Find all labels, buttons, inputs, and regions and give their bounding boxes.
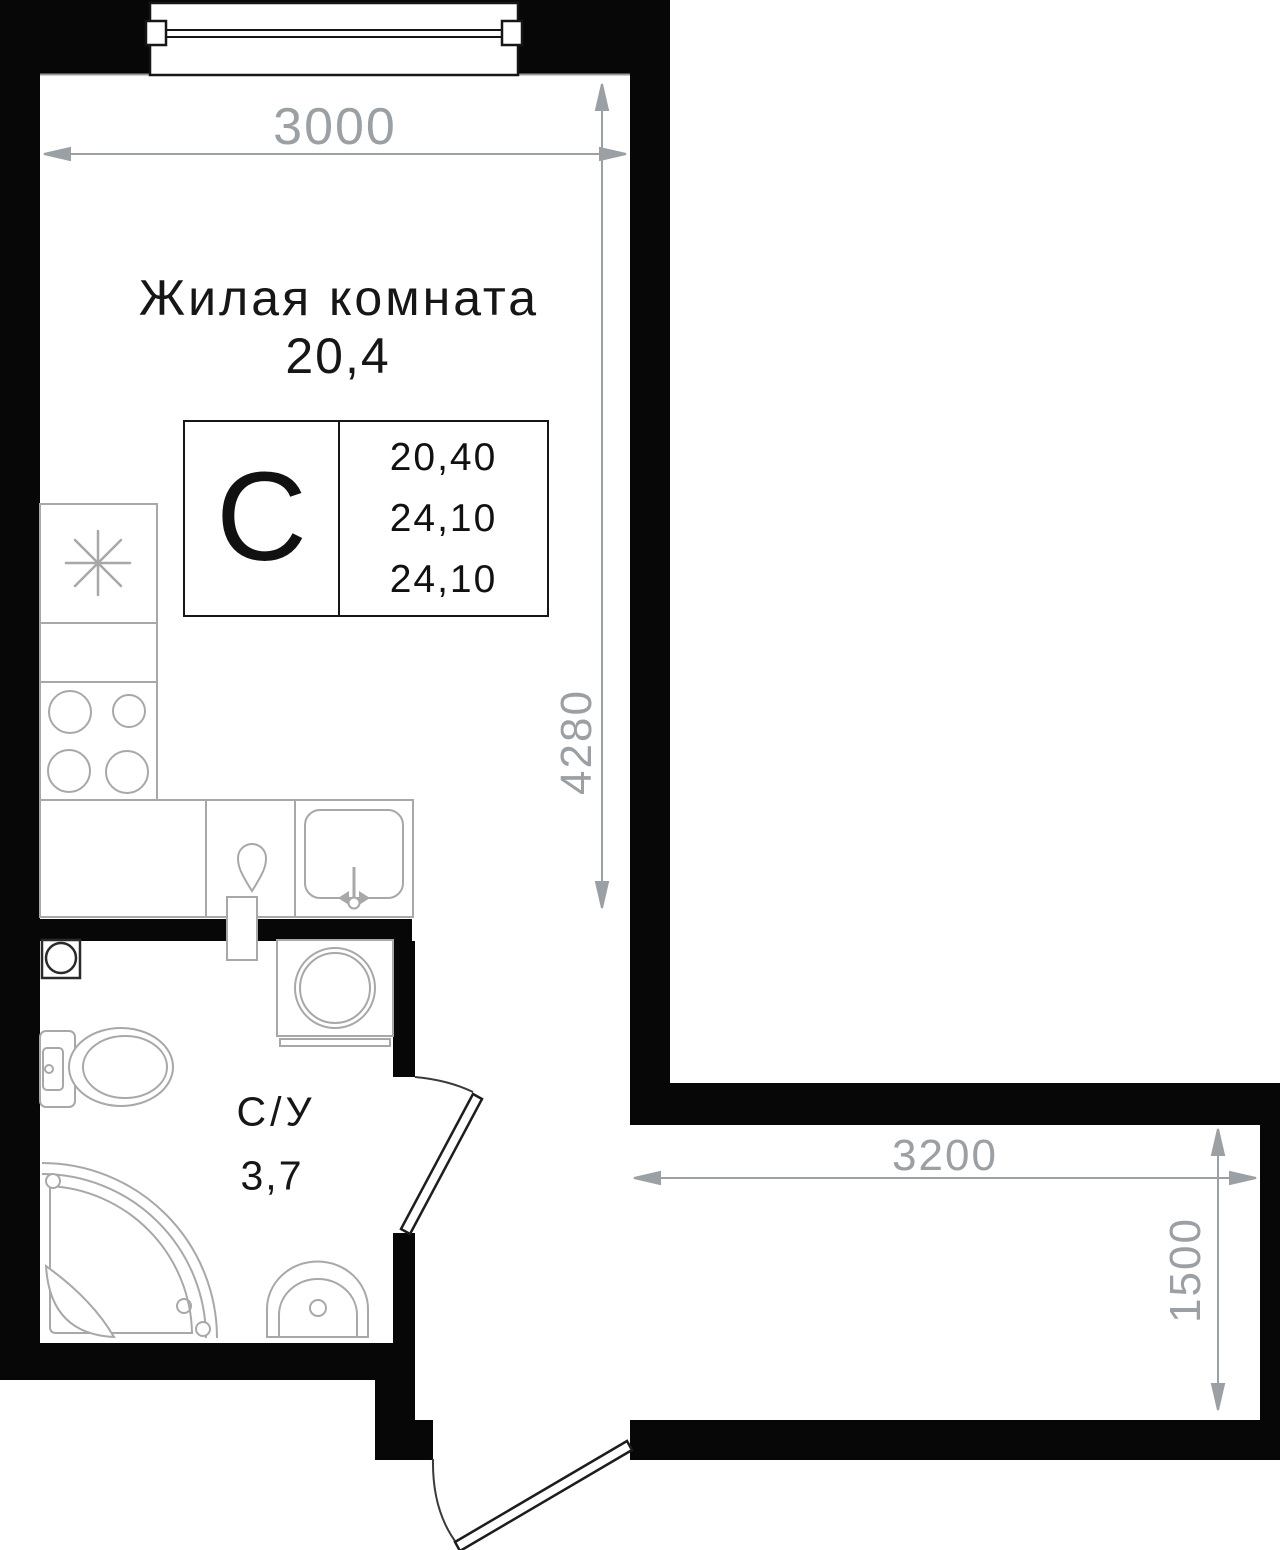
shower-icon (42, 1163, 217, 1338)
wall-far-right (1260, 1125, 1280, 1460)
living-room-label: Жилая комната (139, 273, 539, 323)
wall-hall-top (630, 1083, 1280, 1125)
floor-plan: 3000 4280 3200 1500 Жилая комната 20,4 С… (0, 0, 1280, 1550)
bathroom-fixtures (40, 940, 393, 1338)
wall-entry-jamb-step (375, 1420, 433, 1460)
dimension-hall-width: 3200 (892, 1134, 998, 1178)
dimension-hall-height: 1500 (1164, 1217, 1208, 1323)
toilet-icon (40, 1028, 173, 1107)
kitchen-counter-top (40, 623, 157, 682)
washbasin-icon (267, 1262, 368, 1337)
wall-right-living (630, 0, 670, 1125)
window-icon (146, 3, 522, 75)
dim-line-hall-height (1212, 1129, 1224, 1410)
asterisk-icon (66, 531, 130, 595)
bathroom-label: С/У (236, 1092, 315, 1133)
washing-machine-icon (277, 940, 393, 1046)
wall-bathroom-bottom (0, 1343, 375, 1380)
unit-info-card: С 20,40 24,10 24,10 (183, 420, 549, 617)
wall-left (0, 0, 40, 1380)
unit-total-area-value: 24,10 (390, 558, 498, 602)
meter-box-icon (42, 940, 80, 978)
bathroom-area: 3,7 (241, 1156, 304, 1197)
unit-area-value: 24,10 (390, 497, 498, 541)
unit-type-cell: С (185, 422, 340, 615)
walls (0, 0, 1280, 1460)
dimension-living-height: 4280 (555, 689, 599, 795)
bathroom-door-icon (401, 1077, 482, 1234)
wall-bathroom-top (0, 919, 412, 941)
unit-type-letter: С (216, 444, 307, 589)
kitchen-counter-bottom (40, 800, 206, 917)
unit-living-area-value: 20,40 (390, 436, 498, 480)
dimension-top-width: 3000 (273, 101, 397, 153)
entry-door-icon (433, 1441, 632, 1550)
wall-hall-bottom (630, 1420, 1280, 1460)
living-room-area: 20,4 (285, 331, 390, 381)
unit-values-cell: 20,40 24,10 24,10 (340, 422, 547, 615)
wall-bathroom-right-lower (393, 1233, 415, 1343)
floor-plan-canvas (0, 0, 1280, 1550)
vent-duct (227, 897, 257, 960)
wall-bathroom-right-upper (393, 941, 415, 1077)
